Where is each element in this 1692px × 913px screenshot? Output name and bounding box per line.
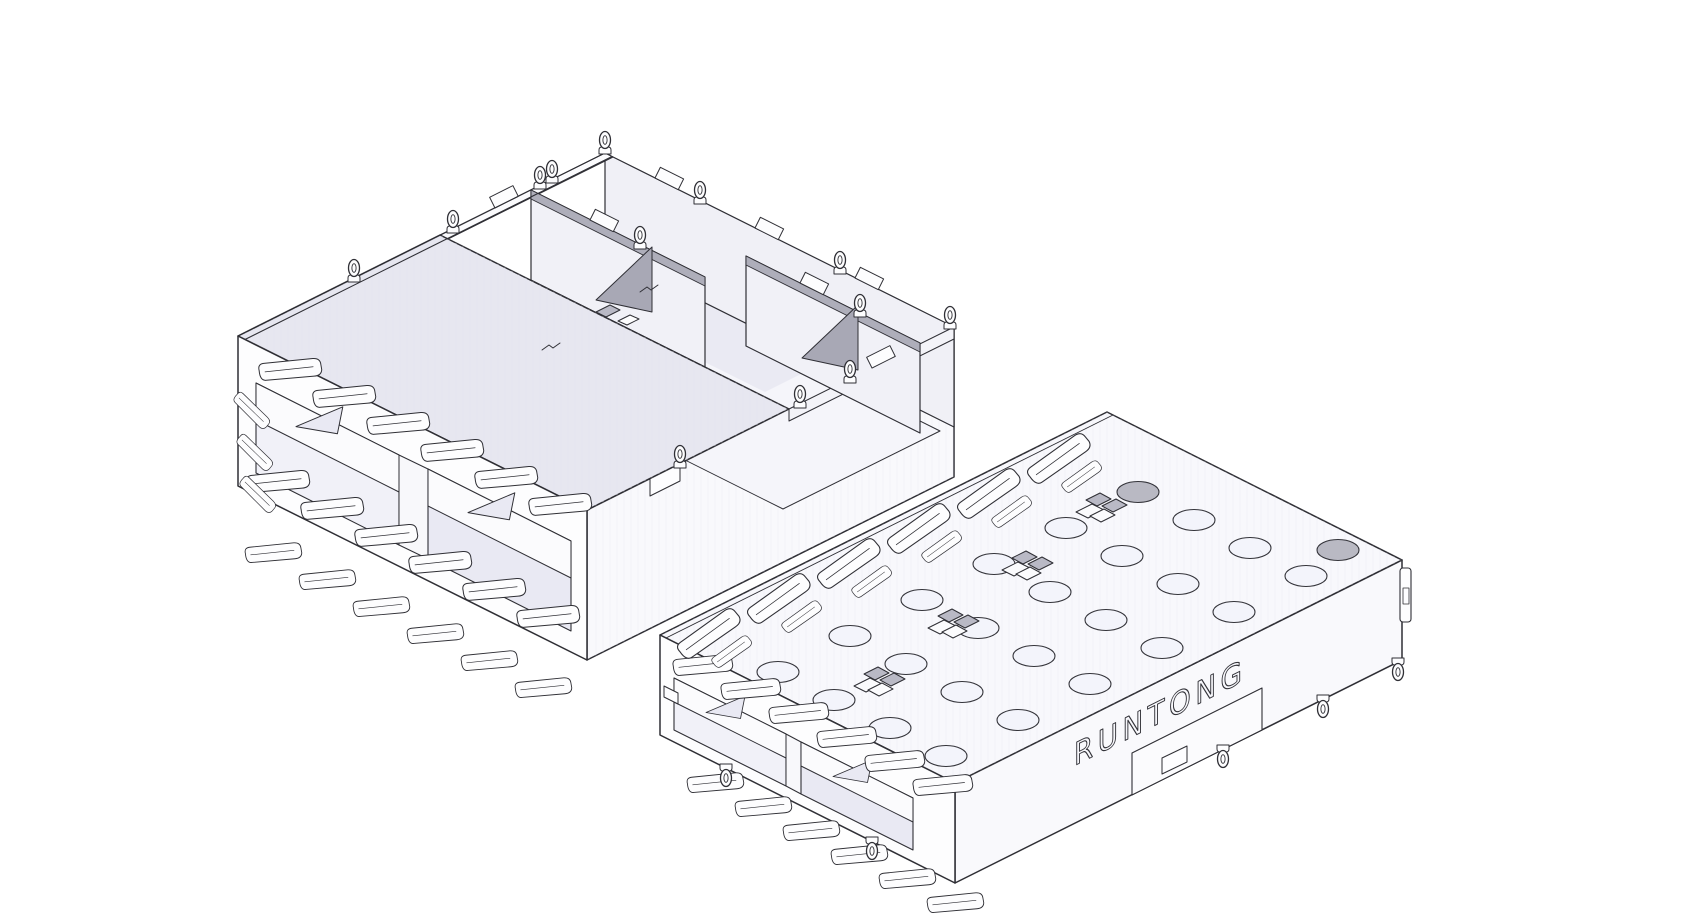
vent-hole	[901, 590, 943, 611]
emi-finger	[243, 533, 304, 573]
press-pin-eyelet	[546, 161, 558, 184]
vent-hole	[1069, 674, 1111, 695]
press-pin-eyelet	[1317, 695, 1329, 718]
press-pin-eyelet	[634, 227, 646, 250]
vent-hole	[1085, 610, 1127, 631]
port-divider	[399, 455, 428, 559]
press-pin-eyelet	[794, 386, 806, 409]
press-pin-eyelet	[720, 764, 732, 787]
press-pin-eyelet	[834, 252, 846, 275]
cad-drawing: RUNTONG	[0, 0, 1692, 913]
press-pin-eyelet	[694, 182, 706, 205]
vent-hole	[1101, 546, 1143, 567]
vent-hole	[885, 654, 927, 675]
press-pin-eyelet	[944, 307, 956, 330]
press-pin-eyelet	[1217, 745, 1229, 768]
press-pin-eyelet	[534, 167, 546, 190]
emi-finger	[351, 587, 412, 627]
vent-hole	[829, 626, 871, 647]
vent-hole-dark	[1317, 540, 1359, 561]
press-pin-eyelet	[844, 361, 856, 384]
vent-hole	[997, 710, 1039, 731]
vent-hole	[925, 746, 967, 767]
emi-finger	[925, 883, 986, 913]
vent-hole	[1229, 538, 1271, 559]
vent-hole	[1013, 646, 1055, 667]
vent-hole	[1173, 510, 1215, 531]
emi-finger	[297, 560, 358, 600]
vent-hole	[1213, 602, 1255, 623]
press-pin-eyelet	[1392, 658, 1404, 681]
press-pin-eyelet	[348, 260, 360, 283]
emi-finger	[405, 614, 466, 654]
emi-finger	[513, 668, 574, 708]
vent-hole-dark	[1117, 482, 1159, 503]
vent-hole	[1045, 518, 1087, 539]
vent-hole	[1157, 574, 1199, 595]
vent-hole	[1285, 566, 1327, 587]
vent-hole	[941, 682, 983, 703]
emi-finger	[459, 641, 520, 681]
press-pin-eyelet	[866, 837, 878, 860]
press-pin-eyelet	[674, 446, 686, 469]
press-pin-eyelet	[447, 211, 459, 234]
cad-canvas: RUNTONG	[0, 0, 1692, 913]
vent-hole	[1029, 582, 1071, 603]
press-pin-eyelet	[854, 295, 866, 318]
port-divider	[786, 734, 801, 794]
vent-hole	[1141, 638, 1183, 659]
end-latch-notch	[1403, 588, 1409, 604]
press-pin-eyelet	[599, 132, 611, 155]
